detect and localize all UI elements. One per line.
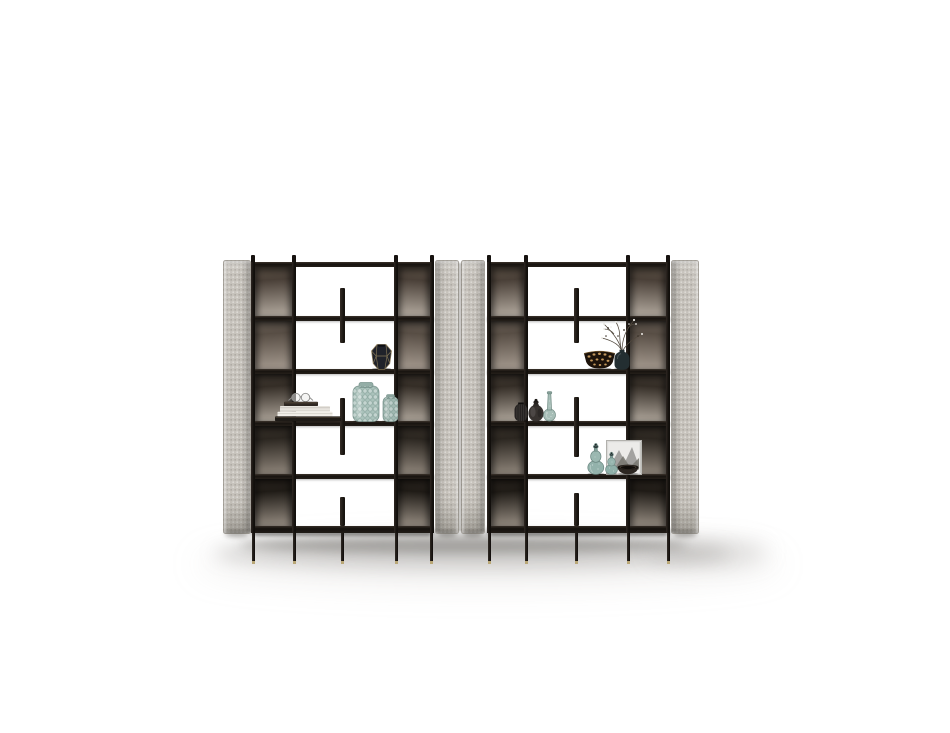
- leg: [575, 533, 578, 561]
- shelf: [251, 369, 434, 374]
- frame-post: [626, 262, 630, 533]
- leg-brass-tip: [488, 561, 491, 564]
- textured-glass-vases: [352, 382, 398, 422]
- leg: [341, 533, 344, 561]
- bottom-shelf: [487, 526, 670, 533]
- leg: [627, 533, 630, 561]
- teal-bottle-graphic: [543, 391, 556, 422]
- back-panel: [255, 320, 292, 370]
- back-panel: [491, 320, 524, 370]
- dark-bowl-graphic: [617, 464, 639, 475]
- back-panel: [398, 266, 430, 317]
- side-panel-inner-left: [435, 260, 459, 534]
- back-panel: [255, 478, 292, 527]
- book-stack-graphic: [275, 389, 341, 422]
- panel-contact-shadow: [437, 531, 457, 537]
- book-stack-with-glasses: [275, 389, 341, 422]
- leg: [488, 533, 491, 561]
- side-panel-outer-left: [223, 260, 251, 534]
- leg: [395, 533, 398, 561]
- vase-with-branches: [595, 312, 647, 370]
- divider-fin: [574, 493, 579, 526]
- leg-brass-tip: [430, 561, 433, 564]
- side-panel-outer-right: [671, 260, 699, 534]
- product-photo-scene: [0, 0, 950, 733]
- gem-vase-graphic: [370, 344, 393, 370]
- leg-brass-tip: [341, 561, 344, 564]
- leg-brass-tip: [525, 561, 528, 564]
- panel-contact-shadow: [673, 531, 697, 537]
- gourd-jug-graphic: [528, 398, 544, 422]
- frame-post: [487, 262, 491, 533]
- leg: [430, 533, 433, 561]
- top-rail: [487, 262, 670, 267]
- frame-post: [666, 262, 670, 533]
- textured-vase-pair-graphic: [352, 382, 398, 422]
- leg-brass-tip: [252, 561, 255, 564]
- panel-contact-shadow: [225, 531, 249, 537]
- back-panel: [398, 320, 430, 370]
- faceted-vase: [370, 344, 393, 370]
- floor-shadow: [240, 536, 688, 553]
- shelf: [487, 474, 670, 479]
- side-panel-inner-right: [461, 260, 485, 534]
- pleated-vase-graphic: [514, 402, 528, 422]
- back-panel: [491, 478, 524, 527]
- teal-gourd-pair-graphic: [587, 443, 618, 475]
- branch-vase-graphic: [595, 312, 647, 370]
- divider-fin: [340, 497, 345, 526]
- back-panel: [630, 478, 666, 527]
- under-shadow: [491, 533, 666, 536]
- shelf: [251, 474, 434, 479]
- dark-bowl: [617, 464, 639, 475]
- leg-brass-tip: [627, 561, 630, 564]
- teal-bottle-vase: [543, 391, 556, 422]
- top-rail: [251, 262, 434, 267]
- floor-shadow: [648, 540, 768, 564]
- back-panel: [630, 266, 666, 317]
- dark-gourd-jug: [528, 398, 544, 422]
- leg: [525, 533, 528, 561]
- back-panel: [630, 373, 666, 422]
- back-panel: [255, 425, 292, 475]
- divider-fin: [574, 397, 579, 457]
- back-panel: [398, 478, 430, 527]
- panel-contact-shadow: [463, 531, 483, 537]
- leg-brass-tip: [667, 561, 670, 564]
- leg-brass-tip: [395, 561, 398, 564]
- pleated-dark-vase: [514, 402, 528, 422]
- leg: [293, 533, 296, 561]
- leg: [252, 533, 255, 561]
- divider-fin: [340, 288, 345, 343]
- back-panel: [491, 425, 524, 475]
- back-panel: [398, 373, 430, 422]
- back-panel: [491, 266, 524, 317]
- teal-gourd-vases: [587, 443, 618, 475]
- panel-gap-shadow: [459, 263, 461, 531]
- frame-post: [430, 262, 434, 533]
- back-panel: [398, 425, 430, 475]
- leg-brass-tip: [575, 561, 578, 564]
- bottom-shelf: [251, 526, 434, 533]
- leg: [667, 533, 670, 561]
- leg-brass-tip: [293, 561, 296, 564]
- frame-post: [251, 262, 255, 533]
- back-panel: [255, 266, 292, 317]
- divider-fin: [574, 288, 579, 343]
